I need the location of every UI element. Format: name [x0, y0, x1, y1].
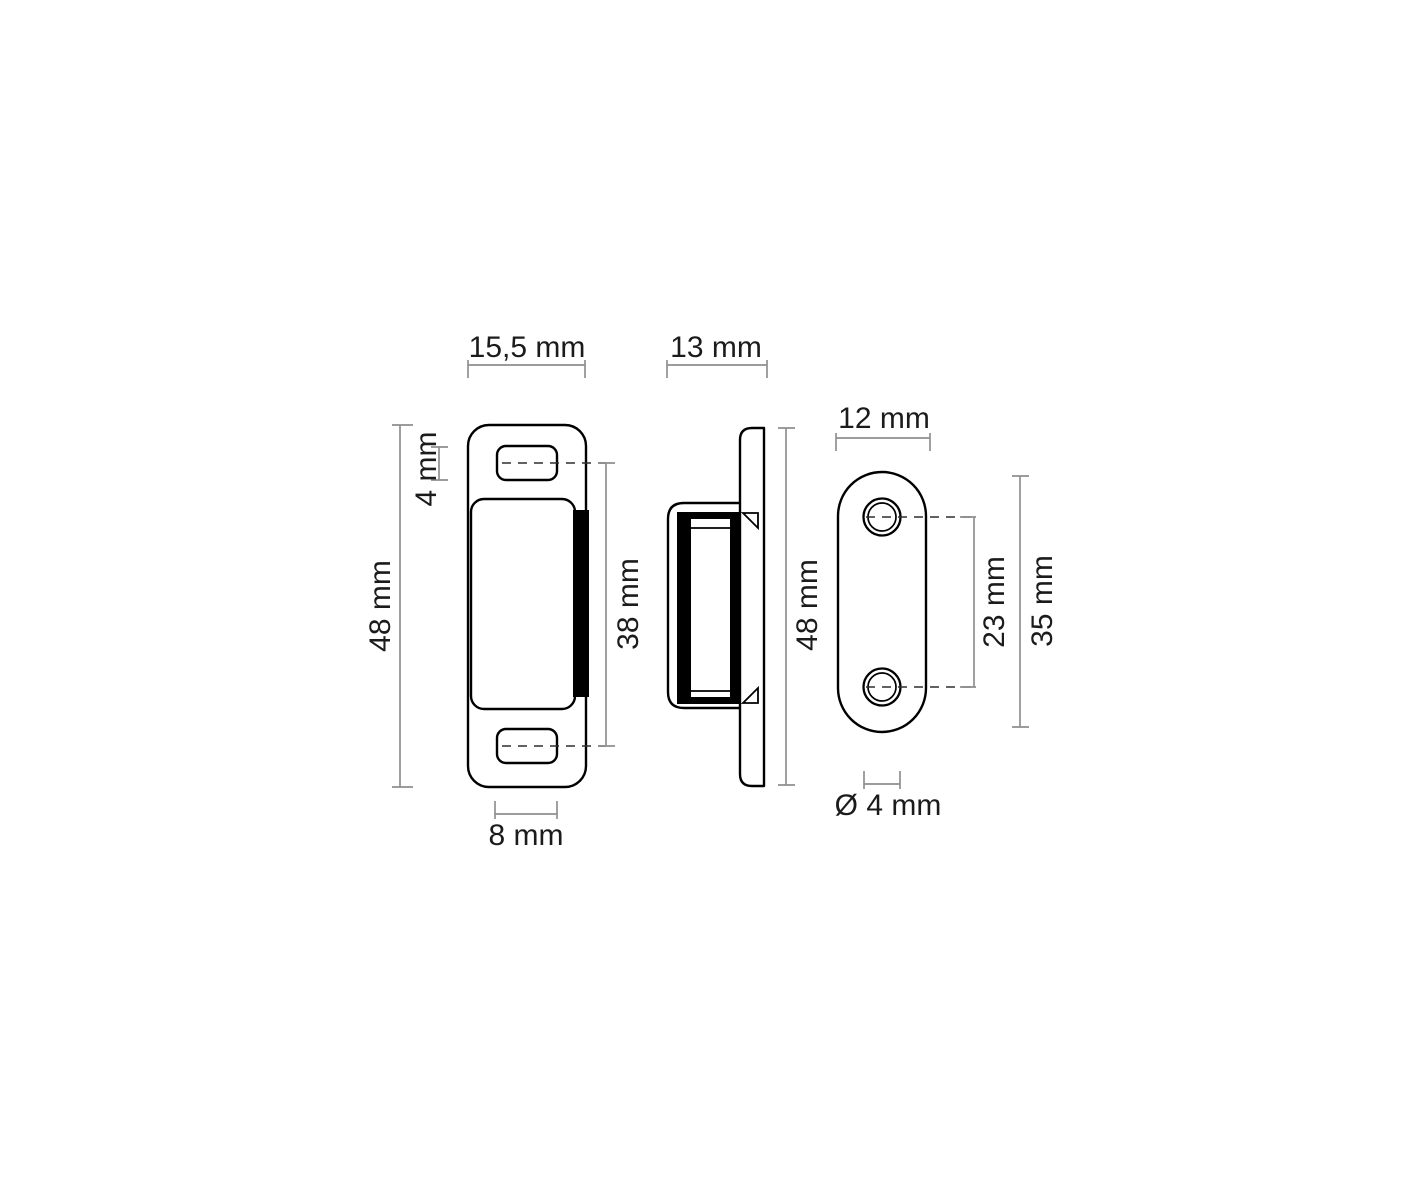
dim-slot-width-line: [495, 801, 557, 819]
dim-body-height: 38 mm: [598, 463, 645, 746]
dim-slot-width: 8 mm: [489, 801, 564, 852]
technical-drawing-canvas: 15,5 mm 13 mm 12 mm 4 mm 48 mm 38 mm 48 …: [0, 0, 1417, 1181]
dim-side-depth: 13 mm: [667, 331, 767, 378]
dim-plate-height-label: 35 mm: [1026, 555, 1059, 647]
dim-front-height: 48 mm: [364, 425, 413, 787]
dim-plate-width-line: [836, 433, 930, 451]
dim-plate-height: 35 mm: [1012, 476, 1059, 727]
front-body-outline: [471, 499, 575, 709]
front-magnet-strip: [573, 510, 589, 697]
side-view: [668, 428, 764, 786]
dim-front-width: 15,5 mm: [468, 331, 585, 378]
dim-slot-height: 4 mm: [410, 432, 448, 507]
dim-hole-diameter-label: Ø 4 mm: [835, 789, 942, 822]
dim-hole-diameter-line: [864, 771, 900, 789]
dim-slot-width-label: 8 mm: [489, 819, 564, 852]
front-view: [468, 425, 606, 787]
dim-body-height-label: 38 mm: [612, 558, 645, 650]
dim-hole-spacing: 23 mm: [960, 517, 1011, 687]
dim-plate-width: 12 mm: [836, 402, 930, 451]
dim-side-depth-label: 13 mm: [670, 331, 762, 364]
dim-plate-width-label: 12 mm: [838, 402, 930, 435]
dim-side-height-label: 48 mm: [791, 559, 824, 651]
dim-front-width-label: 15,5 mm: [469, 331, 586, 364]
dim-front-height-label: 48 mm: [364, 560, 397, 652]
counter-plate-outline: [838, 472, 926, 732]
dim-side-height: 48 mm: [778, 428, 824, 785]
dim-slot-height-label: 4 mm: [410, 432, 443, 507]
dim-hole-diameter: Ø 4 mm: [835, 771, 942, 822]
counter-plate-view: [838, 472, 974, 732]
side-magnet-core: [691, 519, 730, 697]
side-plate-outline: [740, 428, 764, 786]
dim-hole-spacing-label: 23 mm: [978, 556, 1011, 648]
dim-hole-spacing-line: [960, 517, 976, 687]
